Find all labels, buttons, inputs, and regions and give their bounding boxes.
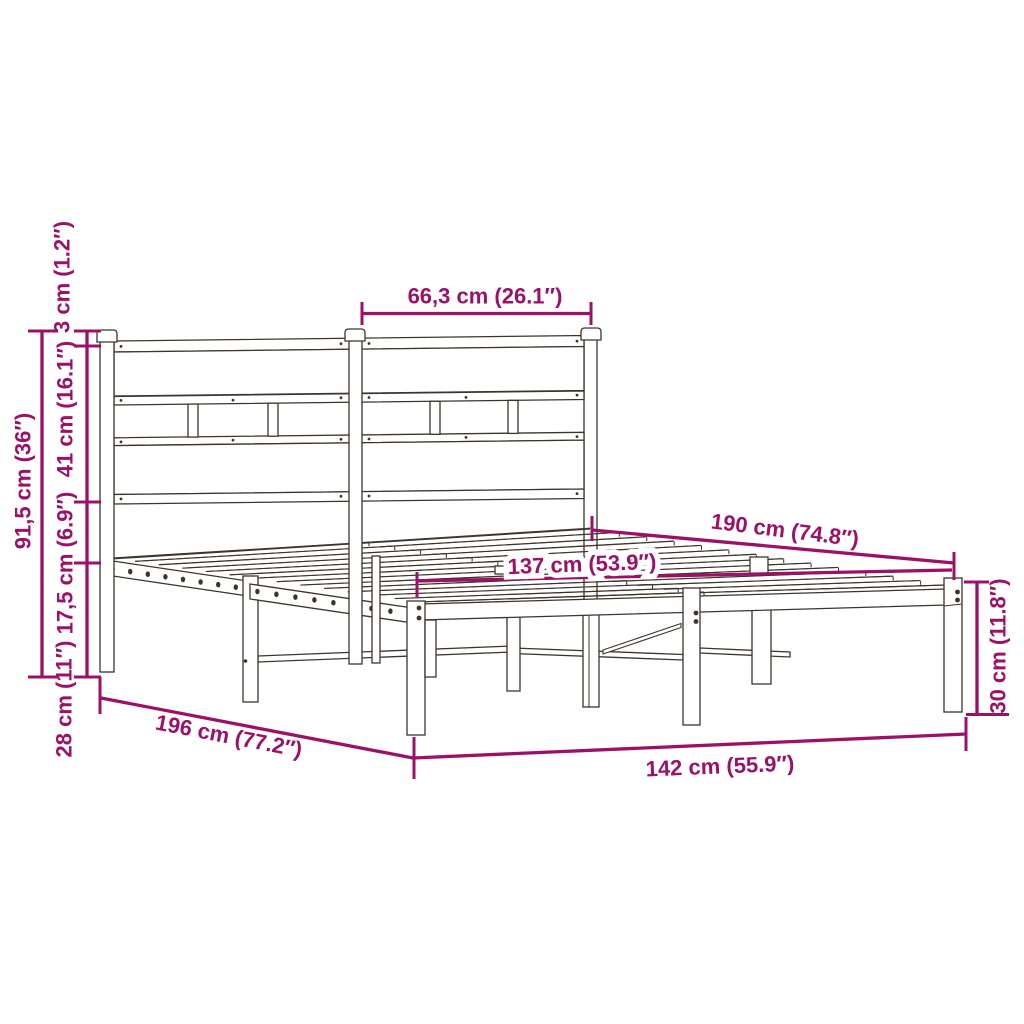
svg-text:30 cm (11.8″): 30 cm (11.8″) bbox=[986, 578, 1011, 713]
svg-text:91,5 cm (36″): 91,5 cm (36″) bbox=[11, 413, 36, 550]
svg-text:137 cm (53.9″): 137 cm (53.9″) bbox=[507, 549, 657, 579]
svg-text:41 cm (16.1″): 41 cm (16.1″) bbox=[53, 341, 78, 478]
svg-text:28 cm (11″): 28 cm (11″) bbox=[52, 641, 77, 758]
svg-text:142 cm (55.9″): 142 cm (55.9″) bbox=[645, 751, 795, 782]
svg-text:190 cm (74.8″): 190 cm (74.8″) bbox=[710, 509, 861, 552]
svg-text:17,5 cm (6.9″): 17,5 cm (6.9″) bbox=[53, 492, 78, 635]
svg-text:196 cm (77.2″): 196 cm (77.2″) bbox=[154, 710, 305, 763]
svg-text:66,3 cm (26.1″): 66,3 cm (26.1″) bbox=[408, 284, 563, 309]
svg-text:3 cm (1.2″): 3 cm (1.2″) bbox=[50, 221, 75, 333]
